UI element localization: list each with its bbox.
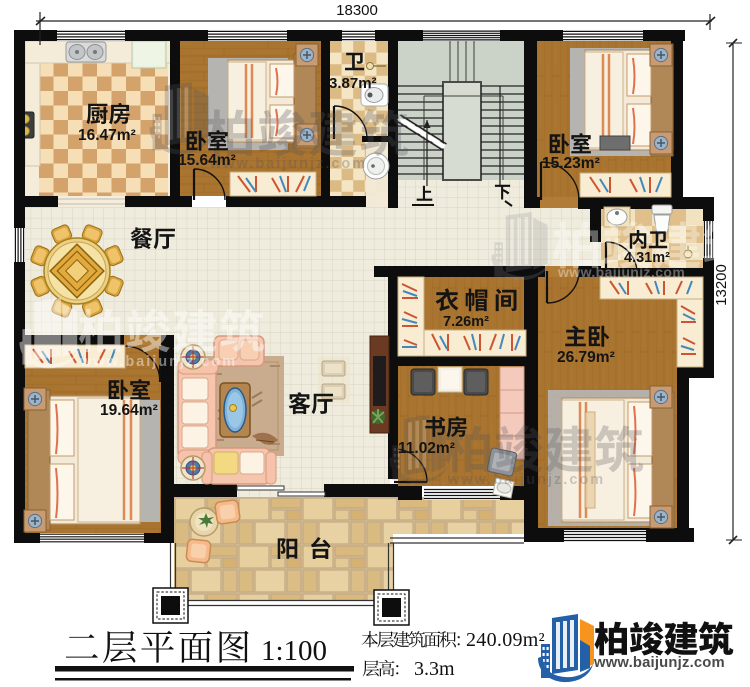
svg-text:16.47m²: 16.47m² bbox=[78, 127, 136, 144]
svg-text:13200: 13200 bbox=[713, 264, 730, 306]
svg-text:7.26m²: 7.26m² bbox=[443, 314, 489, 330]
svg-text:26.79m²: 26.79m² bbox=[557, 349, 615, 366]
svg-text:15.64m²: 15.64m² bbox=[178, 152, 236, 169]
svg-text:www.baijunjz.com: www.baijunjz.com bbox=[593, 655, 725, 671]
svg-text:www.baijunjz.com: www.baijunjz.com bbox=[79, 354, 237, 370]
svg-text:15.23m²: 15.23m² bbox=[542, 155, 600, 172]
svg-text:19.64m²: 19.64m² bbox=[100, 402, 158, 419]
svg-text:www.baijunjz.com: www.baijunjz.com bbox=[447, 472, 605, 488]
svg-text:18300: 18300 bbox=[336, 2, 378, 19]
svg-text:240.09m²: 240.09m² bbox=[466, 629, 545, 651]
svg-text:11.02m²: 11.02m² bbox=[398, 440, 455, 457]
svg-text:3.87m²: 3.87m² bbox=[329, 75, 377, 92]
svg-text:www.baijunjz.com: www.baijunjz.com bbox=[557, 264, 685, 280]
svg-text:4.31m²: 4.31m² bbox=[624, 250, 670, 266]
svg-text:3.3m: 3.3m bbox=[414, 658, 455, 680]
svg-text:1:100: 1:100 bbox=[261, 635, 327, 667]
